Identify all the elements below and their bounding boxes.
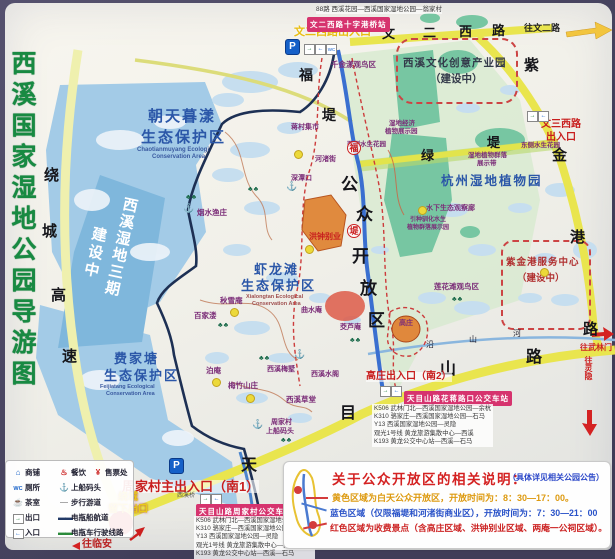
poi-label: 西溪梅墅 [267, 366, 295, 373]
poi-label: 秋雪庵 [220, 297, 243, 305]
ring-road-char: 高 [51, 288, 66, 303]
legend-item-walkway: —步行游道 [58, 497, 101, 508]
xialongtan-zone-label: 生态保护区 [241, 279, 316, 292]
legend-item-entry: ←入口 [12, 527, 40, 539]
legend-item-shop: ⌂商铺 [12, 467, 40, 478]
to-linan-label: 往临安 [82, 540, 112, 550]
chaotian-zone-label: 朝天暮漾 [148, 109, 216, 124]
poi-label: 洪钟别业 [309, 233, 341, 241]
notice-line-blue: 蓝色区域（仅限福堤和河渚街商业区），开放时间为：7：30—21：00 [330, 506, 597, 519]
bus-route: Y13 西溪国家湿地公园—灵隐 [374, 421, 491, 429]
open-area-char: 区 [368, 312, 385, 329]
creative-park-label: （建设中） [430, 74, 483, 85]
anchor-icon: ⚓ [58, 483, 70, 492]
bus-route: K193 黄龙公交中心站—西溪—石马 [196, 550, 313, 558]
arrow-to-lingyin [582, 410, 597, 436]
feijiatang-zone-label: 生态保护区 [104, 369, 179, 382]
poi-label: 高庄 [399, 320, 413, 327]
legend-item-cart-route: ▬▬电瓶车行驶线路 [58, 527, 124, 538]
fudi-road-char: 堤 [322, 108, 336, 122]
notice-title: 关于公众开放区的相关说明： [332, 468, 527, 488]
legend-label: 上船码头 [71, 483, 101, 492]
notice-line-red: 红色区域为收费景点（含高庄区域、洪钟别业区域、两庵一公祠区域）。 [330, 521, 607, 534]
ring-road-char: 绕 [44, 168, 59, 183]
entry-icon: ← [12, 528, 24, 539]
creative-park-boundary [396, 38, 518, 104]
poi-label: 周家村 [271, 419, 292, 426]
legend-label: 入口 [25, 528, 40, 537]
zhoujiacun-entrance-label: 周家村主出入口（南1） [122, 480, 259, 493]
poi-icon-cluster: ♣♣ [350, 337, 361, 344]
yanshanhe-char: 山 [469, 336, 477, 344]
poi-label: 西溪桥 [177, 493, 195, 499]
scenic-dot [246, 394, 255, 403]
legend-label: 售票处 [105, 468, 128, 477]
poi-label: 上船码头 [266, 428, 294, 435]
legend-label: 茶室 [25, 498, 40, 507]
poi-label: 植物展示园 [385, 129, 418, 136]
chaotian-zone-label: 生态保护区 [141, 130, 226, 145]
zijingang-road-char: 金 [552, 148, 567, 163]
arrow-to-wener [566, 22, 612, 39]
poi-label: 水下生态观察廊 [426, 205, 475, 212]
yanshanhe-char: 河 [513, 330, 521, 338]
poi-label: 湿地经济 [389, 121, 415, 128]
chaotian-zone-en: Chaotianmuyang Ecologi [137, 147, 209, 153]
open-area-char: 公 [341, 176, 358, 193]
poi-label: 莲花滩观鸟区 [434, 283, 479, 291]
wenerxi-road-char: 西 [459, 25, 472, 38]
parking-icon: P [285, 39, 300, 55]
poi-label: 百家溇 [194, 312, 217, 320]
fudi-badge-char: 福 [347, 141, 361, 155]
feijiatang-zone-en: Conservation Area [106, 392, 155, 398]
boat-route-line-icon: ▬▬ [58, 513, 70, 522]
shop-icon: ⌂ [12, 468, 24, 477]
poi-label: 泊庵 [206, 367, 221, 375]
service-center-boundary [501, 240, 591, 330]
poi-label: 千金漾观鸟区 [331, 61, 376, 69]
legend-item-toilet: WC厕所 [12, 482, 40, 493]
legend-label: 商铺 [25, 468, 40, 477]
poi-label: 河渚街 [315, 156, 336, 163]
tianmushan-road-char: 天 [241, 458, 257, 474]
map-title: 西溪国家湿地公园导游图 [10, 50, 35, 391]
poi-label: 西溪草堂 [286, 396, 316, 404]
entry-icon: ← [538, 111, 549, 122]
exit-icon: → [304, 44, 315, 55]
notice-arrow-yellow [306, 497, 328, 499]
scenic-dot [305, 245, 314, 254]
zijingang-road-char: 路 [583, 322, 598, 337]
scenic-dot [418, 206, 427, 215]
fudi-road-char: 福 [299, 68, 313, 82]
scenic-dot [540, 268, 549, 277]
poi-label: 蒋村集市 [291, 124, 319, 131]
poi-icon-cluster: ♣♣ [259, 355, 270, 362]
poi-icon-cluster: ♣♣ [186, 194, 197, 201]
bus-stop-badge: 文二西路十字港桥站 [307, 17, 390, 32]
walkway-line-icon: — [58, 498, 70, 507]
poi-label: 茭芦庵 [340, 324, 361, 331]
wc-icon: WC [326, 44, 337, 55]
dock-anchor-icon: ⚓ [183, 203, 194, 214]
exit-icon: → [380, 386, 391, 397]
to-wener-label: 往文二路 [524, 24, 560, 33]
to-lingyin-label: 往灵隐 [584, 356, 592, 380]
legend-label: 餐饮 [71, 468, 86, 477]
wc-icon: WC [12, 486, 24, 492]
scenic-dot [212, 378, 221, 387]
feijiatang-zone-en: Feijiatang Ecological [100, 385, 155, 391]
dining-icon: ♨ [58, 468, 70, 477]
two-nunneries-area [325, 291, 365, 321]
ring-road-char: 城 [42, 224, 57, 239]
poi-label: 西溪水阁 [311, 371, 339, 378]
to-linan-arrow-icon [72, 542, 80, 550]
service-center-label: 紫金港服务中心 [506, 258, 580, 268]
legend-item-ticket: ¥售票处 [92, 467, 128, 478]
entry-icon: ← [391, 386, 402, 397]
poi-icon-cluster: ♣♣ [248, 186, 259, 193]
xialongtan-zone-label: 虾龙滩 [254, 263, 299, 276]
wenerxi-road-char: 二 [423, 26, 436, 39]
dock-anchor-icon: ⚓ [286, 181, 297, 192]
legend-item-dining: ♨餐饮 [58, 467, 86, 478]
bus-route: K506 武林门北—西溪国家湿地公园—余杭 [374, 405, 491, 413]
to-wulinmen-label: 往武林门 [580, 344, 612, 352]
legend-label: 厕所 [25, 483, 40, 492]
legend-label: 步行游道 [71, 498, 101, 507]
poi-label: 东侧水生花园 [521, 143, 560, 150]
notice-subtitle: （具体详见相关公园公告） [508, 472, 604, 483]
poi-label: 曲水庵 [301, 307, 322, 314]
zijingang-road-char: 港 [570, 230, 585, 245]
gaozhuang-entrance-label: 高庄出入口（南2） [366, 372, 452, 382]
open-area-char: 开 [352, 248, 369, 265]
poi-label: 烟水渔庄 [197, 209, 227, 217]
poi-icon-cluster: ♣♣ [452, 296, 463, 303]
poi-label: 展示带 [477, 161, 497, 168]
legend-label: 电瓶船航道 [71, 513, 109, 522]
hongzhong-area [302, 195, 346, 251]
creative-park-label: 西溪文化创意产业园 [403, 58, 507, 69]
xialongtan-zone-en: Xialongtan Ecological [246, 295, 303, 301]
parking-icon: P [169, 458, 184, 474]
exit-icon: → [527, 111, 538, 122]
legend-item-tearoom: ☕茶室 [12, 497, 40, 508]
bus-route-top: 88路 西溪花园—西溪国家湿地公园—翁家村 [316, 7, 442, 14]
open-area-char: 放 [360, 280, 377, 297]
photo-of-map-board: 西溪国家湿地公园导游图 绕 城 高 速 文 二 西 路 往文二路 紫 金 港 路… [0, 0, 615, 559]
scenic-dot [294, 150, 303, 159]
exit-icon: → [12, 513, 24, 524]
bus-route: K193 黄龙公交中心站—西溪—石马 [374, 438, 491, 446]
legend-item-exit: →出口 [12, 512, 40, 524]
poi-label: 引种驯化水生 [410, 217, 446, 223]
legend-item-dock: ⚓上船码头 [58, 482, 101, 493]
poi-icon-cluster: ♣♣ [281, 437, 292, 444]
notice-line-yellow: 黄色区域为白天公众开放区，开放时间为：8：30—17：00。 [332, 491, 574, 504]
feijiatang-zone-label: 费家塘 [114, 352, 159, 365]
dock-anchor-icon: ⚓ [294, 349, 305, 360]
wenerxi-road-char: 路 [492, 24, 505, 37]
tianmushan-road-char: 路 [526, 350, 542, 366]
yanshanhe-char: 沿 [426, 341, 434, 349]
chaotian-zone-en: Conservation Area [152, 154, 205, 160]
ludi-road-char: 堤 [487, 136, 500, 149]
tea-icon: ☕ [12, 498, 24, 507]
botanic-garden-label: 杭州湿地植物园 [441, 175, 543, 188]
tianmushan-road-char: 目 [340, 406, 356, 422]
legend-label: 电瓶车行驶线路 [71, 528, 124, 537]
ring-road-char: 速 [62, 349, 77, 364]
legend-item-boat-route: ▬▬电瓶船航道 [58, 512, 109, 523]
open-area-char: 众 [356, 206, 373, 223]
zijingang-road-char: 紫 [524, 58, 539, 73]
fudi-badge-char: 堤 [347, 224, 361, 238]
poi-label: 梅竹山庄 [228, 382, 258, 390]
xialongtan-zone-en: Conservation Area [252, 302, 301, 308]
bus-route: 观光1号线 黄龙旅游集散中心—西溪 [374, 430, 491, 438]
entry-icon: ← [315, 44, 326, 55]
ludi-road-char: 绿 [421, 149, 434, 162]
poi-icon-cluster: ♣♣ [218, 322, 229, 329]
legend-label: 出口 [25, 513, 40, 522]
poi-label: 植物群落展示园 [407, 225, 449, 231]
scenic-dot [230, 308, 239, 317]
bus-route-list: K506 武林门北—西溪国家湿地公园—余杭 K310 骆家庄—西溪国家湿地公园—… [372, 404, 493, 447]
ticket-icon: ¥ [92, 468, 104, 477]
cart-route-line-icon: ▬▬ [58, 528, 70, 537]
dock-anchor-icon: ⚓ [252, 419, 263, 430]
poi-label: 湿地植物群落 [468, 153, 507, 160]
